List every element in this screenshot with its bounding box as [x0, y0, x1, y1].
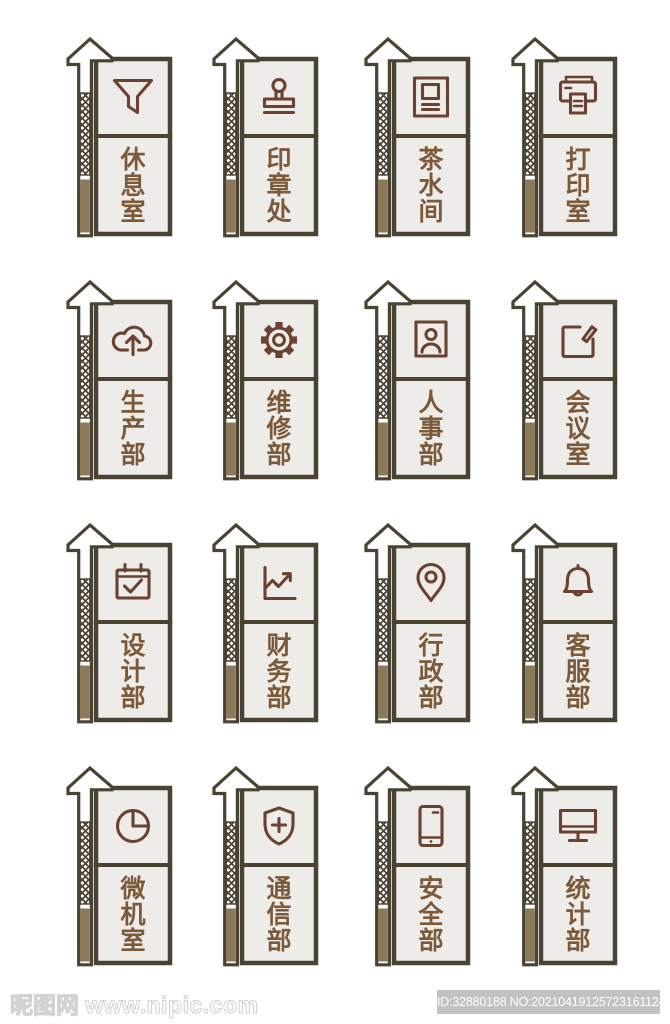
sign-label: 客服部: [539, 624, 617, 720]
sign-label: 茶水间: [392, 138, 470, 234]
sign-label: 人事部: [392, 381, 470, 477]
hatch-strip: [80, 93, 90, 175]
sign-label: 安全部: [392, 867, 470, 963]
sign-customer-service-dept: 客服部: [511, 523, 619, 724]
site-watermark: 昵图网 www.nipic.com: [10, 986, 258, 1020]
sign-statistics-dept: 统计部: [511, 766, 619, 967]
signage-grid: 休息室 印章处: [0, 0, 670, 1024]
sign-computer-room: 微机室: [66, 766, 174, 967]
sign-label: 行政部: [392, 624, 470, 720]
sign-label: 会议室: [539, 381, 617, 477]
sign-meeting-room: 会议室: [511, 280, 619, 481]
sign-maintenance-dept: 维修部: [212, 280, 320, 481]
watermark-id-badge: ID:32880188 NO:20210419125723161124: [437, 990, 660, 1014]
brown-strip: [80, 180, 90, 233]
sign-label: 微机室: [94, 867, 172, 963]
sign-production-dept: 生产部: [66, 280, 174, 481]
sign-security-dept: 安全部: [364, 766, 472, 967]
sign-label: 休息室: [94, 138, 172, 234]
sign-admin-dept: 行政部: [364, 523, 472, 724]
sign-communications-dept: 通信部: [212, 766, 320, 967]
sign-label: 维修部: [240, 381, 318, 477]
sign-label: 生产部: [94, 381, 172, 477]
sign-finance-dept: 财务部: [212, 523, 320, 724]
sign-hr-dept: 人事部: [364, 280, 472, 481]
sign-label: 打印室: [539, 138, 617, 234]
sign-print-room: 打印室: [511, 37, 619, 238]
sign-seal-office: 印章处: [212, 37, 320, 238]
sign-label: 印章处: [240, 138, 318, 234]
site-logo-text: 昵图网: [10, 992, 79, 1018]
sign-label: 统计部: [539, 867, 617, 963]
sign-design-dept: 设计部: [66, 523, 174, 724]
sign-label: 通信部: [240, 867, 318, 963]
sign-lounge: 休息室: [66, 37, 174, 238]
sign-label: 财务部: [240, 624, 318, 720]
sign-label: 设计部: [94, 624, 172, 720]
sign-pantry: 茶水间: [364, 37, 472, 238]
site-url-text: www.nipic.com: [85, 992, 258, 1018]
